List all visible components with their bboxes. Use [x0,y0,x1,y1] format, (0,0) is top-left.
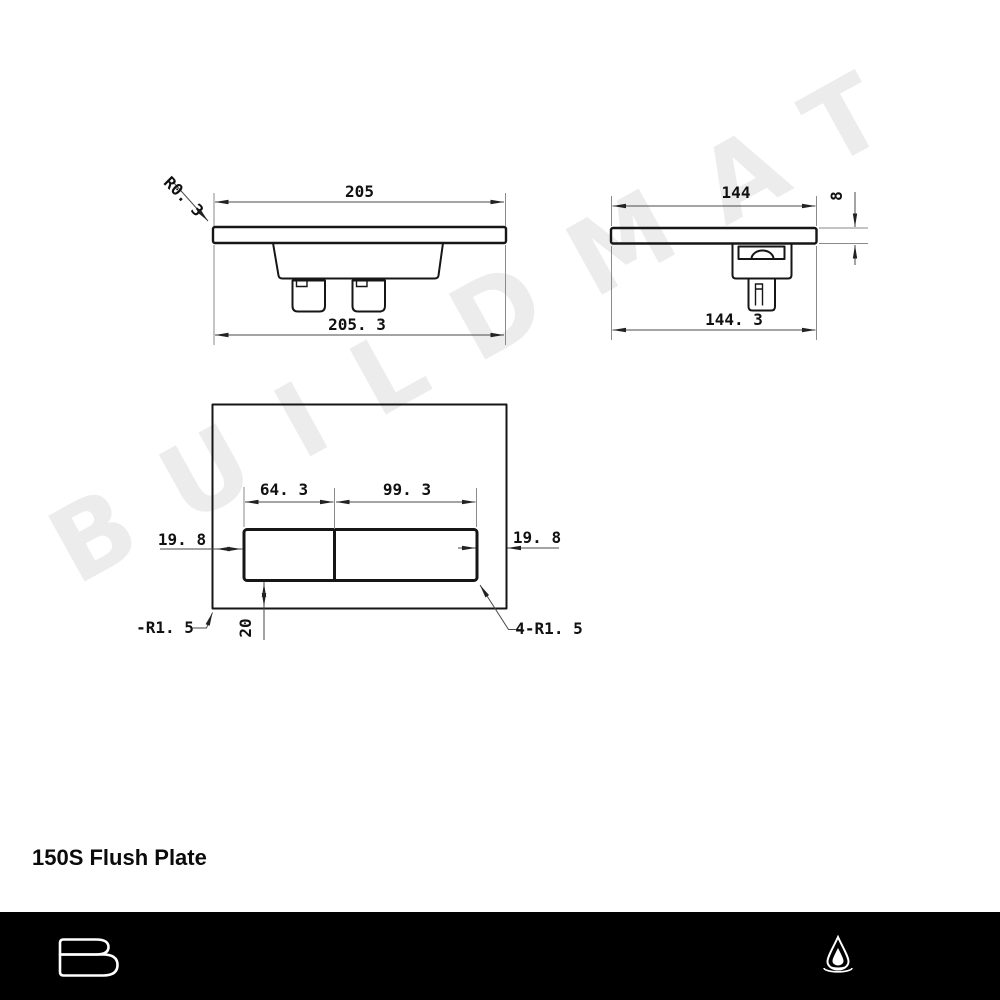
dim-text-205-3: 205. 3 [328,317,386,333]
dim-text-144: 144 [722,185,751,201]
end-view-mechanism-box [733,244,792,279]
argent-droplet-icon [824,937,852,972]
dim-text-144-3: 144. 3 [705,312,763,328]
dim-text-r1-5: -R1. 5 [136,620,194,636]
side-view-body [273,243,443,279]
end-view-plate [611,228,817,244]
end-view-mechanism-band [739,247,785,260]
front-face-view [160,405,559,641]
footer-bar: BUILDMAT Argent [0,912,1000,1000]
side-view-plate [213,227,506,243]
side-view-clip-right [353,281,386,312]
dim-text-8: 8 [829,191,845,201]
buildmat-ribbon-b-icon [60,940,118,976]
end-view-mechanism-dome [752,251,774,260]
end-view-stem-slot [756,284,763,306]
dim-text-99-3: 99. 3 [383,482,431,498]
page: BUILDMAT [0,0,1000,1000]
footer-logos [0,912,1000,1000]
dim-text-205: 205 [345,184,374,200]
front-view-buttons [244,530,477,581]
technical-drawing [0,0,1000,910]
dim-text-20: 20 [238,618,254,637]
dim-text-4-r1-5: 4-R1. 5 [515,621,582,637]
side-view-clip-left [293,281,326,312]
page-title: 150S Flush Plate [32,845,207,871]
leader-r1-5 [193,613,213,629]
dim-text-19-8-left: 19. 8 [158,532,206,548]
dim-text-19-8-right: 19. 8 [513,530,561,546]
front-view-plate [213,405,507,609]
dim-text-64-3: 64. 3 [260,482,308,498]
